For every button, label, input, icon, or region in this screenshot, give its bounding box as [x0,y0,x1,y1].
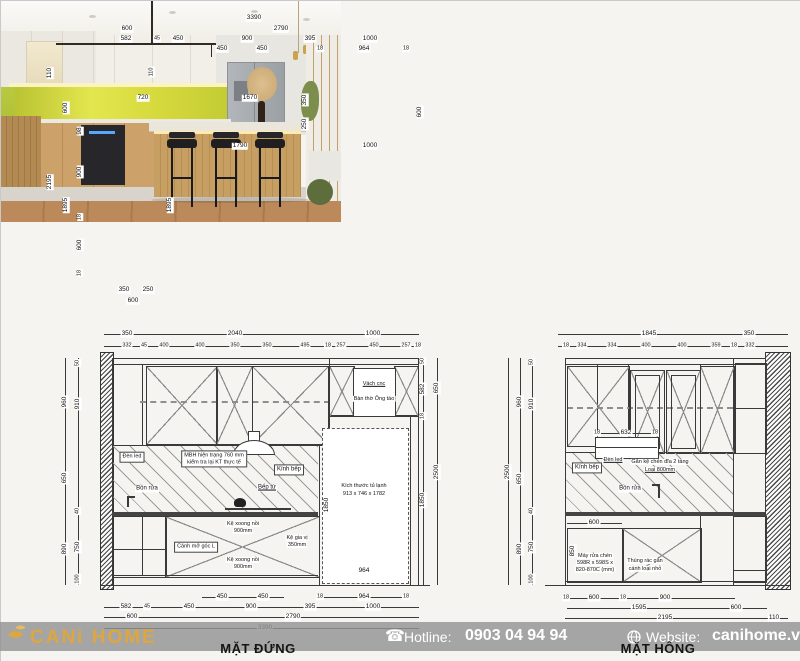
line [595,447,657,448]
wall-hatch-top [100,62,410,86]
label-ke-xoong-size: 900mm [233,528,253,534]
upper-cabinet-door [252,366,329,445]
gold-pendant-cord [298,1,299,53]
under-cabinet-light [9,83,227,87]
kettle [234,498,246,507]
dim-label: 910 [529,398,536,411]
website-label: Website: [646,629,700,645]
counter-outline [112,84,347,142]
line [565,364,765,365]
dim-label: 964 [358,568,371,575]
trash-cabinet [622,528,702,583]
line [565,358,566,585]
built-in-oven [81,125,125,185]
line [565,581,765,582]
label-ke-chen: Gắn kệ chén đĩa 2 tầng [630,459,689,465]
label-den-led: Đèn led [603,457,624,463]
backsplash-hatch [113,446,318,513]
label-canh-mo: Cánh mở góc L [174,542,218,553]
label-thung-rac2: cánh loại nhỏ [628,566,663,572]
hotline-number[interactable]: 0903 04 94 94 [465,627,567,645]
dim-label: 18 [730,343,738,349]
dim-label: 110 [149,67,155,78]
line [565,358,765,359]
glass-door-frame [671,375,696,449]
dim-label: 650 [62,472,69,485]
dim-label: 495 [299,343,310,349]
line [213,132,239,138]
dim-label: 960 [517,396,524,409]
line [508,358,509,585]
dried-flowers [247,67,277,101]
dim-label: 45 [153,36,161,42]
line [565,618,788,619]
island-countertop [149,122,306,132]
dim-label: 964 [358,594,371,601]
countertop-front [112,512,318,516]
countertop-side [565,512,765,516]
plant-lower [307,179,333,205]
dim-label: 110 [768,615,780,622]
dim-label: 1790 [232,143,248,150]
dim-label: 2500 [434,464,441,480]
line [545,585,790,586]
dim-label: 50 [75,359,81,367]
label-hood-note: MBH hiện trạng 760 mmkiểm tra lại KT thự… [181,450,247,467]
tile-floor [1,187,341,203]
dim-label: 450 [368,343,379,349]
dim-label: 582 [120,604,133,611]
base-cabinets [1,123,231,187]
line [329,415,418,416]
line [558,346,788,347]
open-shelf [595,437,659,459]
left-upper-cabinets [1,31,96,126]
line [137,104,138,280]
line [142,516,143,576]
line [104,607,419,608]
dim-label: 400 [194,343,205,349]
dim-label: 750 [529,541,536,554]
dim-label: 40 [529,507,535,515]
wall-hatch-left [100,84,114,282]
dim-label: 600 [588,520,601,527]
dim-label: 650 [517,473,524,486]
dim-label: 110 [47,67,54,79]
fridge-dashed-outline [322,428,409,584]
footer-band [0,622,800,651]
line [112,575,318,576]
dim-label: 18 [651,430,659,436]
glass-partition [306,35,341,201]
wood-floor [1,201,341,222]
leaf-icon [8,627,24,643]
dim-label: 450 [172,36,185,43]
line [50,62,51,285]
line [142,364,143,445]
line [255,139,285,148]
side-base-column [733,516,767,583]
base-cabinet [112,516,167,578]
fridge-divider [254,62,255,134]
line [597,364,598,452]
line [700,516,701,581]
dim-label: 1670 [242,95,258,102]
line [130,146,408,147]
dim-label: 350 [118,287,131,294]
upper-cabinet-door [700,366,735,454]
dim-label: 582 [420,383,427,396]
label-ke-gia-vi: Kệ gia vị [285,535,308,541]
dim-label: 2195 [657,615,673,622]
line [259,148,261,207]
dim-label: 1000 [365,604,381,611]
line [700,364,701,452]
note-line: Kết hợp xem ảnh thực tế và bản vẽ sản xu… [246,233,394,242]
dim-label: 1895 [63,197,70,213]
sofa [309,151,341,181]
dim-label: 1850 [324,497,331,513]
range-hood [233,440,275,455]
bullet: - [226,233,229,242]
dim-label: 334 [606,343,617,349]
label-line: kiểm tra lại KT thực tế [184,459,244,466]
label-thung-rac: Thùng rác gắn [626,558,663,564]
dim-label: 18 [420,412,426,420]
line [100,18,408,19]
dim-label: 450 [257,594,270,601]
dim-label: 400 [676,343,687,349]
dim-label: 600 [417,106,424,119]
dim-label: 250 [142,287,155,294]
line [319,445,320,585]
dim-label: 400 [640,343,651,349]
hotline-label: Hotline: [404,629,451,645]
wall-hatch [100,352,114,590]
dim-label: 18 [324,343,332,349]
line [112,364,418,365]
dim-label: 50 [420,357,426,365]
line [329,358,330,445]
dim-label: 257 [335,343,346,349]
fridge-space [345,84,410,142]
line [171,148,173,207]
dim-label: 900 [659,595,672,602]
dim-label: 750 [75,541,82,554]
glass-cabinet [26,41,63,91]
line [765,352,766,588]
line [410,415,411,585]
line [127,496,129,507]
spotlight [169,11,176,14]
upper-cabinet-door [567,366,630,447]
line [595,433,657,434]
label-bon-rua: Bồn rửa [135,486,159,493]
line [112,358,113,585]
wall-hatch [765,352,791,590]
label-kinh-bep: Kính bếp [274,464,304,475]
upper-cabinet-door [394,366,419,417]
line [66,84,67,285]
upper-cabinets [1,35,341,88]
led-strip-dashed [567,407,733,409]
island-led [154,131,301,134]
dim-label: 3390 [246,15,262,22]
dim-label: 900 [77,166,84,179]
left-cabinet-run [112,84,157,282]
kitchen-render-photo [0,0,800,661]
gold-pendant-bulb [303,45,308,54]
pendant-stem [151,1,153,43]
dim-label: 45 [140,343,148,349]
dim-label: 2040 [227,331,243,338]
line [100,39,408,40]
note-line: Kiểm tra kích thước thực tế trước khi th… [246,222,398,231]
line [155,120,345,121]
label-ke-gia-vi-size: 350mm [287,542,307,548]
dim-label: 1845 [641,331,657,338]
drawing-title: KHÁCH BẾP [249,191,326,206]
label-vach-cnc: Vách cnc [362,381,387,387]
dim-label: 964 [358,46,371,53]
dim-label: 350 [302,94,309,107]
dim-label: 18 [619,595,627,601]
line [200,49,284,50]
dim-label: 450 [216,46,229,53]
line [215,177,237,179]
label-bon-rua: Bồn rửa [618,486,642,493]
leaf-icon [16,623,26,633]
line [112,358,418,359]
dim-label: 720 [137,95,150,102]
plant [301,81,319,121]
line [225,508,291,510]
pendant-bar-light [56,43,216,45]
upper-cabinet-door [329,366,355,417]
dim-label: 334 [576,343,587,349]
elevation-title-front: MẶT ĐỨNG [220,641,295,656]
dim-label: 850 [570,545,577,558]
line [733,570,765,571]
dim-label: 332 [744,343,755,349]
dim-label: 900 [245,604,258,611]
elevation-title-side: MẶT HÔNG [621,641,696,656]
side-shelf-column [735,363,767,454]
fridge-dispenser [234,81,248,101]
led-strip-dashed [140,401,330,403]
dim-label: 600 [121,26,134,33]
side-elevation: 18 632 18 Kính bếp Đèn led Gắn kệ chén đ… [0,0,800,661]
dim-label: 18 [316,46,324,52]
dim-label: 332 [121,343,132,349]
line [318,49,408,50]
line [437,358,438,585]
dim-label: 18 [402,46,410,52]
kitchen-detail-sheet: 3390 600 2790 582 45 450 900 395 1000 45… [0,0,800,661]
line [78,358,79,585]
dim-label: 1000 [365,331,381,338]
line [279,148,281,207]
dim-label: 450 [216,594,229,601]
label-tu-lanh-size: 913 x 746 x 1782 [342,491,386,497]
dim-label: 3390 [257,625,273,632]
dim-label: 1850 [420,492,427,508]
line [100,585,430,586]
brand-logo: CANi HOME [30,627,157,649]
line [104,617,419,618]
dim-label: 900 [241,36,254,43]
dim-label: 350 [743,331,756,338]
dim-label: 18 [593,430,601,436]
notes-heading: GHI CHÚ : [209,211,248,220]
line [112,445,329,446]
label-ban-tho: Bàn thờ Ông táo [353,396,396,402]
line [733,358,734,585]
dim-label: 890 [62,543,69,556]
dim-label: 1595 [631,605,647,612]
line [65,358,66,585]
spotlight [303,18,310,21]
globe-icon [627,630,641,644]
dim-label: 2790 [285,614,301,621]
label-may-rua-size: 598R x 598S x [576,560,614,566]
dim-label: 18 [77,213,83,221]
dim-label: 890 [517,543,524,556]
back-wall [216,35,316,135]
line [100,29,408,30]
line [104,334,419,335]
line [112,549,165,550]
spotlight [89,15,96,18]
label-den-led: Đèn led [120,452,145,463]
line [567,523,622,524]
dim-label: 98 [77,126,84,135]
base-cabinet-doors [165,516,320,578]
floor-plan: 3390 600 2790 582 45 450 900 395 1000 45… [0,0,800,661]
line [259,177,281,179]
bullet: - [226,222,229,231]
sheet-subtitle: CHI TIẾT BẾP L + TỦ LẠNH [218,247,360,259]
line [658,484,660,498]
dim-label: 582 [120,36,133,43]
dim-label: 1000 [362,36,378,43]
dim-label: 450 [256,46,269,53]
cnc-panel [353,368,396,417]
glass-door [666,370,701,454]
line [305,84,306,140]
line [112,301,165,302]
dim-label: 600 [730,605,743,612]
dim-label: 2195 [47,174,54,190]
dim-label: 18 [316,594,324,600]
dim-label: 2500 [505,464,512,480]
dim-label: 395 [304,36,317,43]
phone-icon: ☎ [385,626,405,646]
line [423,358,424,585]
gold-pendant-bulb [293,51,298,60]
front-elevation: Vách cnc Bàn thờ Ông táo Đèn led MBH hiệ… [0,0,800,661]
dim-label: 18 [402,594,410,600]
line [202,597,284,598]
label-ke-chen-size: Loại 800mm [644,467,676,473]
dim-label: 600 [63,102,70,115]
label-ke-xoong-size: 900mm [233,564,253,570]
line [532,358,533,585]
dim-label: 632 [620,430,633,437]
upper-cabinet-door [146,366,218,445]
label-tu-lanh: Kích thước tủ lạnh [340,483,387,489]
glass-door [630,370,665,454]
dim-label: 45 [143,604,151,610]
dim-label: 600 [127,298,140,305]
line [211,139,241,148]
corner-column [1,116,41,201]
line [104,346,419,347]
label-ke-xoong: Kệ xoong nồi [226,521,260,527]
line [171,177,193,179]
dim-label: 400 [158,343,169,349]
dim-label: 18 [414,343,422,349]
line [170,140,171,283]
backsplash-glass [1,87,227,119]
ceiling [1,1,341,35]
line [169,132,195,138]
line [127,496,135,498]
footer-bar: CANi HOME ☎ Hotline: 0903 04 94 94 Websi… [0,0,800,661]
line [112,98,345,99]
line [652,484,659,486]
dim-label: 18 [562,343,570,349]
countertop [1,119,231,123]
backsplash-hatch [566,453,733,513]
line [257,132,283,138]
website-url[interactable]: canihome.vn [712,627,800,645]
line [558,334,788,335]
wine-bottle [258,101,265,127]
dim-label: 395 [304,604,317,611]
dim-label: 600 [77,239,84,252]
dim-label: 600 [588,595,601,602]
notes-block: KHÁCH BẾP GHI CHÚ : - Kiểm tra kích thướ… [0,0,800,661]
dim-label: 18 [562,595,570,601]
island-shadow [151,197,311,203]
dim-label: 450 [183,604,196,611]
line [167,139,197,148]
dim-label: 18 [77,269,83,277]
glass-door-frame [635,375,660,449]
label-bep-tu: Bếp từ [257,485,277,492]
spotlight [251,10,258,13]
line [520,358,521,585]
upper-cabinet-door [216,366,253,445]
dim-label: 100 [529,573,535,584]
line [235,148,237,207]
dim-label: 350 [121,331,134,338]
line [104,628,419,629]
dim-label: 1000 [362,143,378,150]
line [735,408,765,409]
dim-label: 650 [434,382,441,395]
line [215,148,217,207]
oven-display [89,131,115,134]
line [112,290,165,291]
dim-label: 910 [75,398,82,411]
dim-label: 960 [62,396,69,409]
dim-label: 1895 [167,197,174,213]
label-line: MBH hiện trạng 760 mm [184,452,244,459]
line [80,62,81,285]
refrigerator [227,62,285,136]
